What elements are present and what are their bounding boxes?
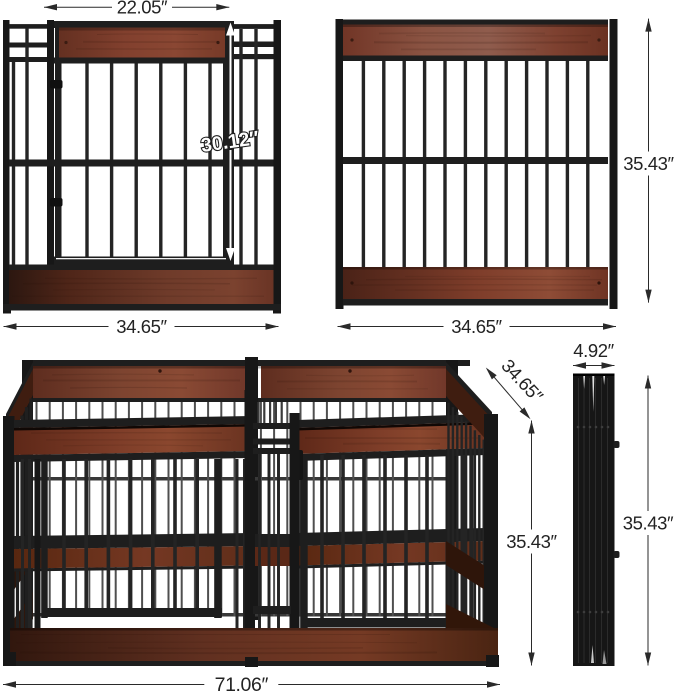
svg-text:34.65″: 34.65″ xyxy=(497,355,547,407)
svg-text:35.43″: 35.43″ xyxy=(623,512,674,533)
svg-text:4.92″: 4.92″ xyxy=(573,340,614,361)
svg-text:35.43″: 35.43″ xyxy=(506,531,557,552)
svg-text:34.65″: 34.65″ xyxy=(451,316,502,337)
svg-text:34.65″: 34.65″ xyxy=(116,316,167,337)
svg-text:35.43″: 35.43″ xyxy=(623,153,674,174)
svg-text:22.05″: 22.05″ xyxy=(117,0,168,18)
svg-text:71.06″: 71.06″ xyxy=(215,674,269,693)
